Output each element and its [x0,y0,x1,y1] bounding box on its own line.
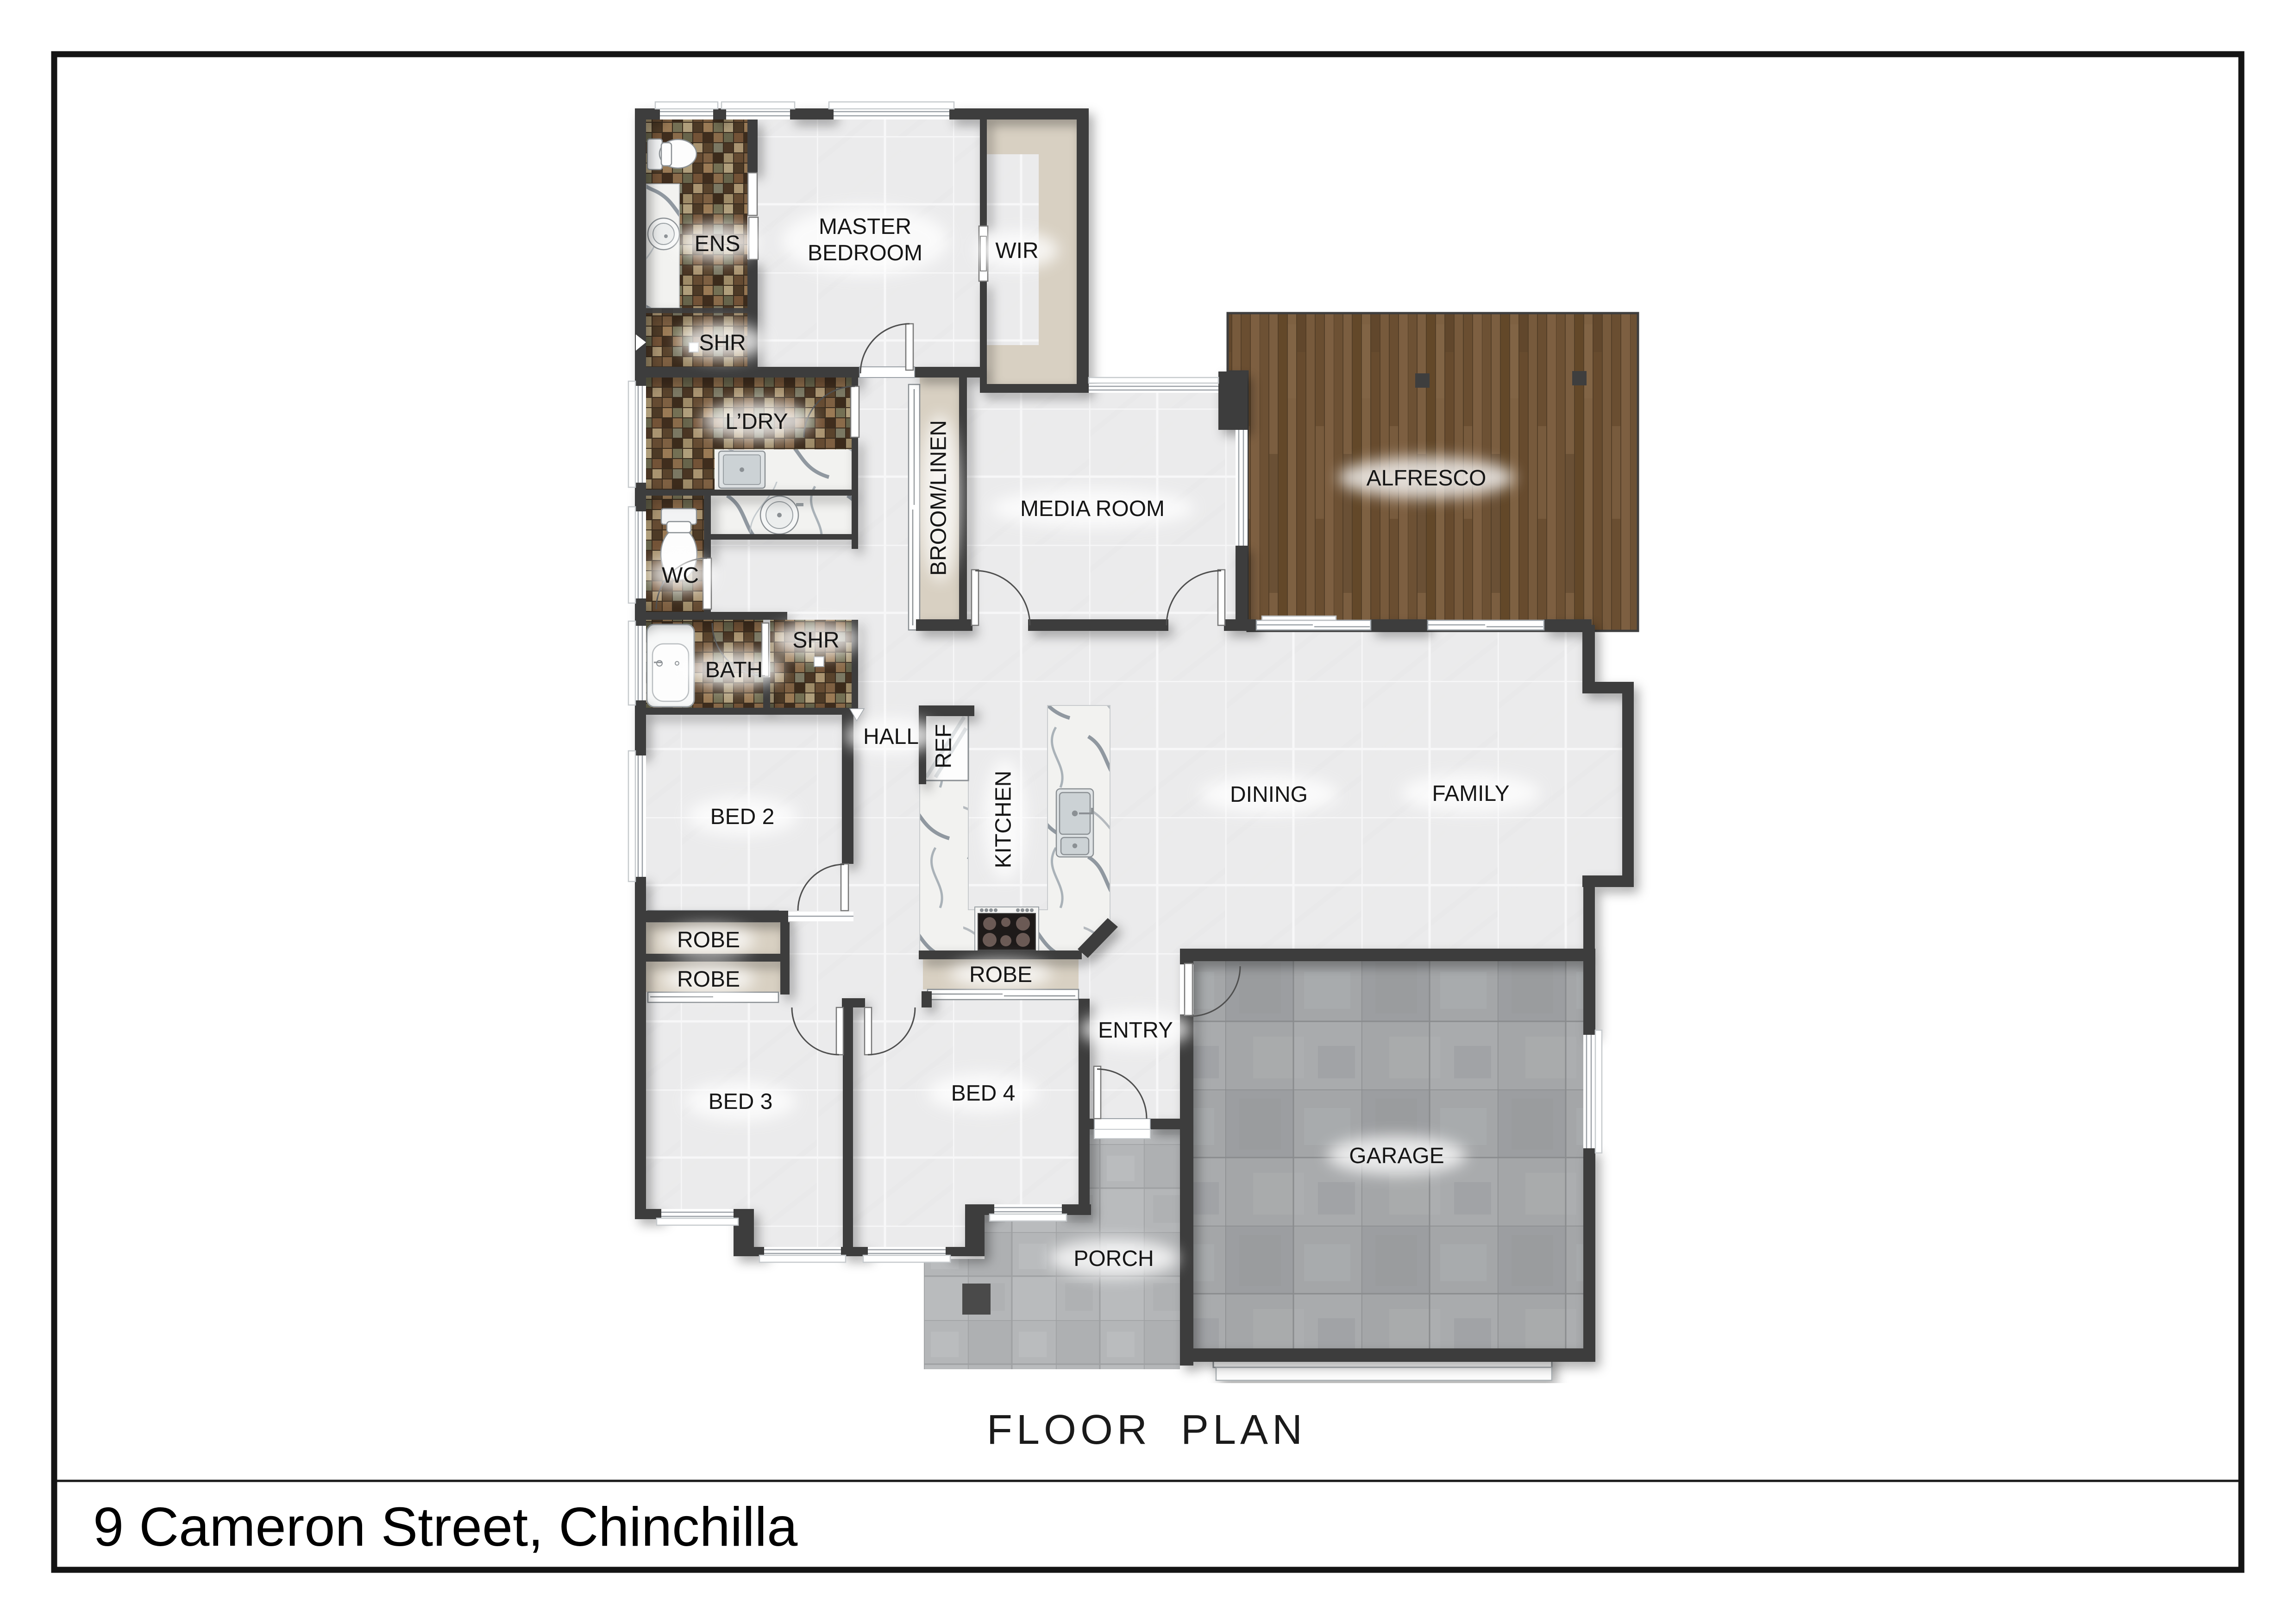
svg-text:BED 2: BED 2 [710,805,775,829]
svg-text:BEDROOM: BEDROOM [808,241,922,265]
svg-text:BED 3: BED 3 [709,1089,773,1114]
svg-text:GARAGE: GARAGE [1349,1144,1444,1168]
svg-text:SHR: SHR [792,628,839,653]
svg-text:BATH: BATH [705,658,763,682]
svg-text:ROBE: ROBE [677,928,740,952]
svg-text:ALFRESCO: ALFRESCO [1367,466,1487,491]
svg-text:ROBE: ROBE [677,967,740,992]
svg-text:REF: REF [932,724,956,768]
svg-text:MASTER: MASTER [819,214,911,239]
svg-text:DINING: DINING [1230,782,1308,807]
svg-text:PORCH: PORCH [1073,1246,1154,1271]
svg-text:ENS: ENS [695,232,740,256]
svg-text:MEDIA ROOM: MEDIA ROOM [1020,497,1165,521]
svg-text:HALL: HALL [863,724,919,749]
svg-text:FLOOR PLAN: FLOOR PLAN [987,1407,1306,1453]
svg-text:ROBE: ROBE [969,963,1032,987]
svg-text:BED 4: BED 4 [951,1081,1016,1106]
svg-text:FAMILY: FAMILY [1432,781,1509,806]
svg-text:BROOM/LINEN: BROOM/LINEN [927,420,951,576]
svg-text:9 Cameron Street, Chinchilla: 9 Cameron Street, Chinchilla [93,1496,798,1558]
svg-text:ENTRY: ENTRY [1098,1018,1173,1043]
svg-text:SHR: SHR [699,331,746,355]
svg-text:L’DRY: L’DRY [725,409,788,434]
svg-text:KITCHEN: KITCHEN [991,771,1016,869]
svg-text:WIR: WIR [995,239,1038,263]
svg-text:WC: WC [662,563,699,588]
